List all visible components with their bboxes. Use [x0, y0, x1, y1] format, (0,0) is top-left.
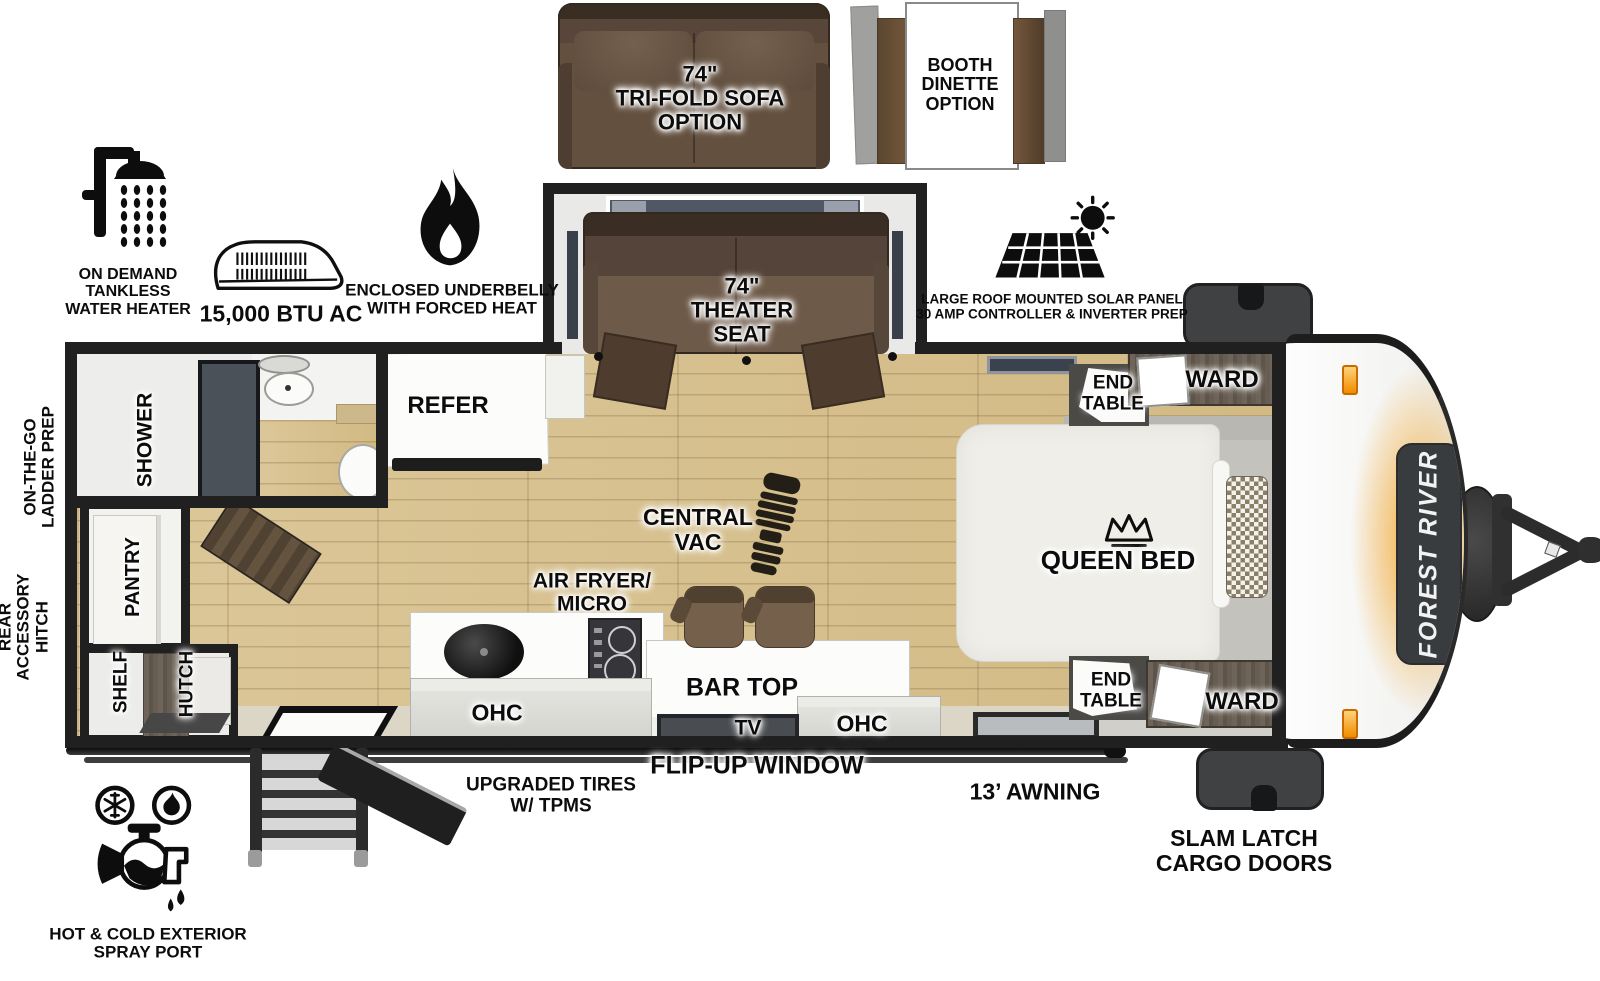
bar-top-label: BAR TOP	[686, 675, 798, 702]
stool-back	[756, 587, 814, 603]
spray-port-icon	[82, 780, 210, 922]
spray-port-caption: HOT & COLD EXTERIOR SPRAY PORT	[49, 926, 246, 963]
hutch-room	[80, 644, 238, 744]
step-rail	[250, 748, 262, 854]
tv-label: TV	[735, 718, 762, 741]
solar-panel-icon	[992, 194, 1120, 286]
rear-wall	[65, 342, 77, 748]
wardrobe-door	[1150, 664, 1211, 728]
sofa-armrest	[558, 63, 572, 169]
theater-footrest	[593, 332, 677, 410]
bathroom-vent	[258, 355, 310, 374]
brand-badge-label: FOREST RIVER	[1416, 450, 1443, 659]
refer-label: REFER	[407, 393, 488, 419]
ac-caption: 15,000 BTU AC	[200, 302, 363, 327]
air-fryer-label: AIR FRYER/ MICRO	[533, 570, 651, 615]
refrigerator-vent	[392, 458, 542, 471]
hitch-coupler	[1578, 537, 1600, 563]
seat-button	[888, 352, 897, 361]
bathroom-wall	[65, 496, 388, 508]
seat-arm	[874, 262, 889, 354]
end-table-bottom-label: END TABLE	[1080, 670, 1142, 711]
awning-rail	[84, 757, 1128, 763]
shower-icon	[80, 142, 180, 254]
step-foot	[354, 850, 368, 867]
underbelly-caption: ENCLOSED UNDERBELLY WITH FORCED HEAT	[345, 282, 559, 319]
cargo-doors-label: SLAM LATCH CARGO DOORS	[1156, 826, 1332, 876]
bar-stool	[755, 586, 815, 648]
cargo-latch	[1238, 284, 1264, 310]
queen-bed	[956, 424, 1220, 662]
tires-caption: UPGRADED TIRES W/ TPMS	[466, 775, 636, 816]
ac-unit-icon	[208, 236, 354, 296]
queen-bed-label: QUEEN BED	[1041, 546, 1196, 574]
ward-top-label: WARD	[1185, 367, 1258, 393]
rear-hitch-label: REAR ACCESSORY HITCH	[0, 573, 52, 680]
ladder-prep-label: ON-THE-GO LADDER PREP	[22, 406, 59, 528]
awning-label: 13’ AWNING	[970, 780, 1101, 805]
brand-badge: FOREST RIVER	[1396, 443, 1462, 665]
top-wall	[915, 342, 1287, 354]
bathroom-cabinet	[336, 404, 380, 424]
shelf-label: SHELF	[112, 651, 133, 713]
bottom-wall	[65, 736, 1287, 748]
shower-label: SHOWER	[135, 393, 158, 488]
step-tread	[262, 810, 358, 818]
shower-door	[198, 360, 260, 508]
cargo-door-bottom	[1196, 748, 1324, 810]
marker-light	[1342, 709, 1358, 739]
dinette-bench	[1013, 18, 1045, 164]
front-cap: FOREST RIVER	[1286, 334, 1468, 748]
step-tread	[262, 830, 358, 838]
ohc-top-face	[798, 697, 940, 707]
step-foot	[248, 850, 262, 867]
ohc-kitchen-label: OHC	[471, 701, 522, 726]
seat-button	[594, 352, 603, 361]
rv-floorplan-diagram: 74" TRI-FOLD SOFA OPTION BOOTH DINETTE O…	[0, 0, 1600, 981]
cooktop-controls	[594, 628, 602, 668]
central-vac-label: CENTRAL VAC	[643, 505, 753, 555]
sofa-armrest	[816, 63, 830, 169]
ward-bottom-label: WARD	[1205, 689, 1278, 715]
burner	[608, 626, 636, 654]
ceiling-vent	[987, 356, 1077, 374]
cargo-latch	[1251, 785, 1277, 811]
seat-arm	[583, 262, 598, 354]
marker-light	[1342, 365, 1358, 395]
sink-faucet-dot	[480, 648, 488, 656]
slide-window	[889, 228, 906, 342]
sofa-option-label: 74" TRI-FOLD SOFA OPTION	[616, 62, 785, 133]
slide-window	[564, 228, 581, 342]
bathroom-wall	[376, 346, 388, 508]
hutch-label: HUTCH	[178, 651, 199, 718]
dinette-option-label: BOOTH DINETTE OPTION	[921, 56, 998, 114]
wardrobe-door	[1136, 354, 1189, 407]
theater-seat-label: 74" THEATER SEAT	[691, 274, 793, 345]
flip-up-window-label: FLIP-UP WINDOW	[650, 753, 863, 780]
solar-caption: LARGE ROOF MOUNTED SOLAR PANEL 30 AMP CO…	[916, 292, 1188, 321]
bar-stool	[684, 586, 744, 648]
pantry-label: PANTRY	[123, 537, 145, 617]
sink-drain	[285, 385, 291, 391]
theater-footrest	[801, 332, 885, 410]
kitchen-ohc	[410, 678, 652, 744]
top-wall	[65, 342, 562, 354]
side-cabinet	[545, 355, 585, 419]
dinette-end-panel	[1044, 10, 1066, 162]
water-heater-caption: ON DEMAND TANKLESS WATER HEATER	[65, 266, 191, 318]
seat-button	[742, 356, 751, 365]
ohc-top-face	[411, 679, 651, 691]
flame-icon	[410, 162, 490, 272]
bed-pillow	[1226, 476, 1268, 598]
end-table-top-label: END TABLE	[1082, 373, 1144, 414]
ohc-bar-label: OHC	[836, 712, 887, 737]
stool-back	[685, 587, 743, 603]
